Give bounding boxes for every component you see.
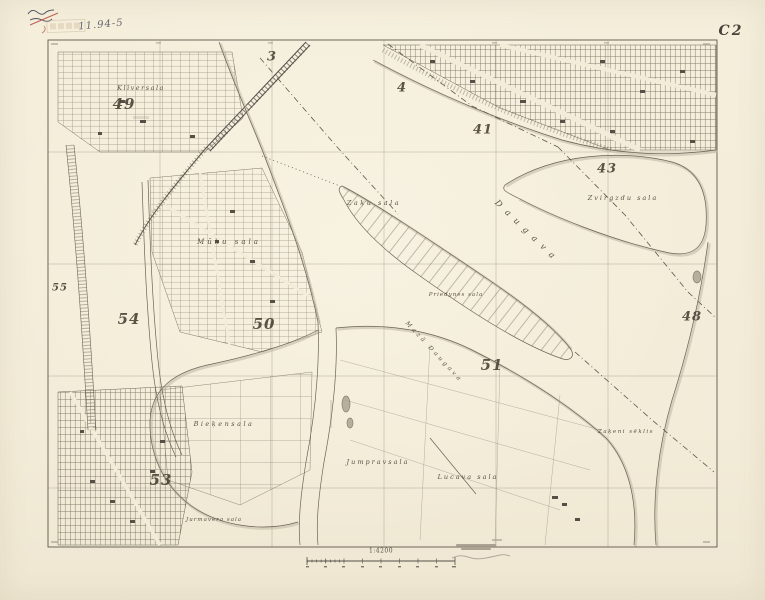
corner-annotations <box>28 10 85 33</box>
map-linework <box>0 0 765 600</box>
kliversala-parcels <box>58 52 243 152</box>
pond <box>693 271 701 283</box>
lucavsala-east-shore <box>606 438 635 545</box>
zvirgzdusala-outline <box>504 155 707 254</box>
lucavsala-ditch <box>430 438 476 494</box>
jumprava-channel-east <box>317 328 336 545</box>
mukusala-parcels <box>150 168 322 352</box>
scale-ratio-label: 1:4200 <box>369 548 393 555</box>
railway-embankment <box>70 145 92 430</box>
zakusala-outline <box>339 186 572 359</box>
pond <box>347 418 353 428</box>
biekensala-parcels <box>160 372 312 505</box>
east-river-edge <box>655 242 708 545</box>
lucavsala-field-lines <box>340 345 600 545</box>
illegible-figure <box>492 539 502 541</box>
built-up-areas <box>58 45 716 545</box>
pond <box>342 396 350 412</box>
scale-bar <box>306 557 456 567</box>
scale-tick-figures <box>306 566 456 567</box>
sheet-code: C2 <box>719 23 744 39</box>
pencil-signature <box>452 555 510 559</box>
